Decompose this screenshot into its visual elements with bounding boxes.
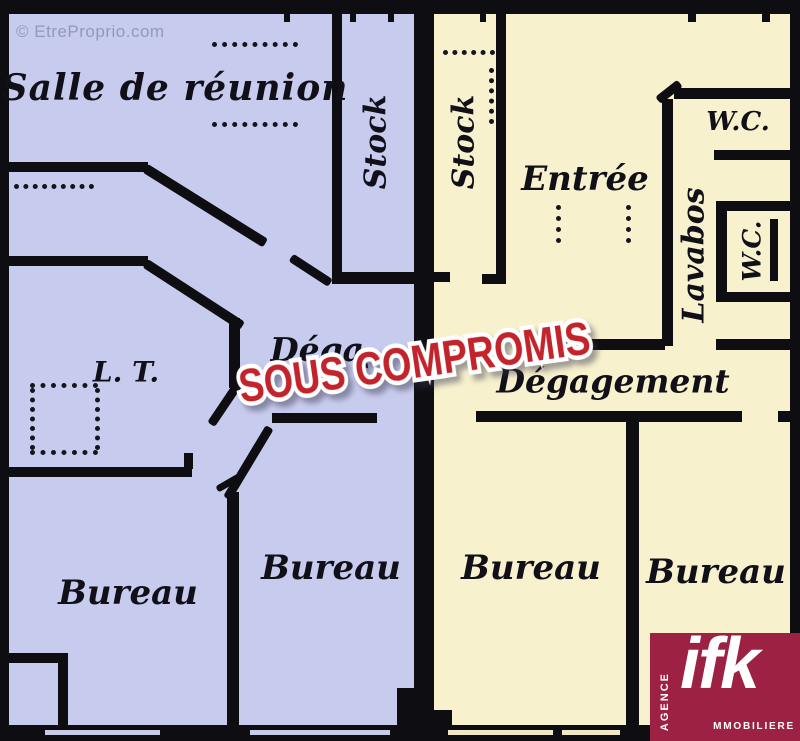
wall	[482, 274, 506, 284]
wall	[8, 162, 148, 172]
room-label-bureau-2: Bureau	[261, 548, 401, 588]
wall	[8, 467, 192, 477]
wall-wc2-inner	[770, 219, 778, 281]
wall	[0, 0, 800, 14]
wall-tick	[284, 14, 290, 22]
dotted-marker	[95, 388, 100, 450]
logo-brand-text: ifk	[680, 623, 758, 705]
window	[448, 730, 553, 735]
room-label-bureau-1: Bureau	[58, 573, 198, 613]
dotted-marker	[489, 68, 494, 124]
wall	[714, 150, 800, 160]
window	[562, 730, 620, 735]
watermark: © EtreProprio.com	[16, 22, 165, 42]
wall-wc2	[716, 201, 727, 302]
wall	[272, 413, 377, 423]
room-label-bureau-4: Bureau	[646, 552, 786, 592]
wall	[790, 0, 800, 741]
wall-tick	[350, 14, 356, 22]
dotted-marker	[626, 205, 631, 243]
wall-corridor	[476, 411, 742, 422]
wall	[434, 272, 450, 282]
wall-entree-right	[662, 99, 673, 346]
wall-step	[58, 653, 68, 726]
room-label-wc-top: W.C.	[706, 107, 770, 137]
room-label-entree: Entrée	[521, 159, 649, 199]
room-label-salle-de-reunion: Salle de réunion	[2, 67, 349, 109]
wall-step	[434, 710, 452, 726]
room-label-lavabos: Lavabos	[677, 187, 712, 322]
dotted-marker	[212, 122, 298, 127]
wall-step	[397, 688, 434, 726]
dotted-marker	[14, 184, 94, 189]
floor-plan: Salle de réunion Stock L. T. Dégagement …	[0, 0, 800, 741]
window	[45, 730, 160, 735]
wall-wc2	[716, 201, 800, 211]
wall-tick	[480, 14, 486, 22]
wall-stock-right	[496, 14, 506, 284]
door-stop	[184, 453, 193, 469]
wall-stock-left	[332, 14, 342, 280]
wall-corridor	[716, 339, 800, 350]
dotted-marker	[443, 50, 495, 55]
dotted-marker	[30, 388, 35, 450]
wall-bureau-divider-left	[227, 492, 239, 726]
room-label-bureau-3: Bureau	[461, 548, 601, 588]
wall	[0, 0, 9, 741]
dotted-marker	[556, 205, 561, 243]
logo-agence-text: AGENCE	[659, 672, 671, 731]
dotted-marker	[212, 42, 298, 47]
dotted-marker	[30, 450, 98, 455]
wall-wc2	[716, 292, 800, 302]
room-label-stock-right: Stock	[447, 95, 482, 190]
dotted-marker	[30, 383, 98, 388]
wall-tick	[688, 14, 696, 22]
window	[250, 730, 390, 735]
wall-corridor	[778, 411, 800, 422]
wall-wc-top	[674, 88, 800, 99]
room-label-wc-side: W.C.	[738, 220, 767, 281]
wall-tick	[388, 14, 394, 22]
room-label-lt: L. T.	[93, 356, 159, 389]
wall-tick	[762, 14, 770, 22]
wall	[332, 272, 414, 284]
agency-logo: AGENCE ifk MMOBILIERE	[650, 633, 800, 741]
logo-immobiliere-text: MMOBILIERE	[713, 721, 795, 732]
room-label-stock-left: Stock	[359, 95, 394, 190]
wall-bureau-divider-right	[626, 411, 639, 726]
wall	[8, 256, 148, 266]
